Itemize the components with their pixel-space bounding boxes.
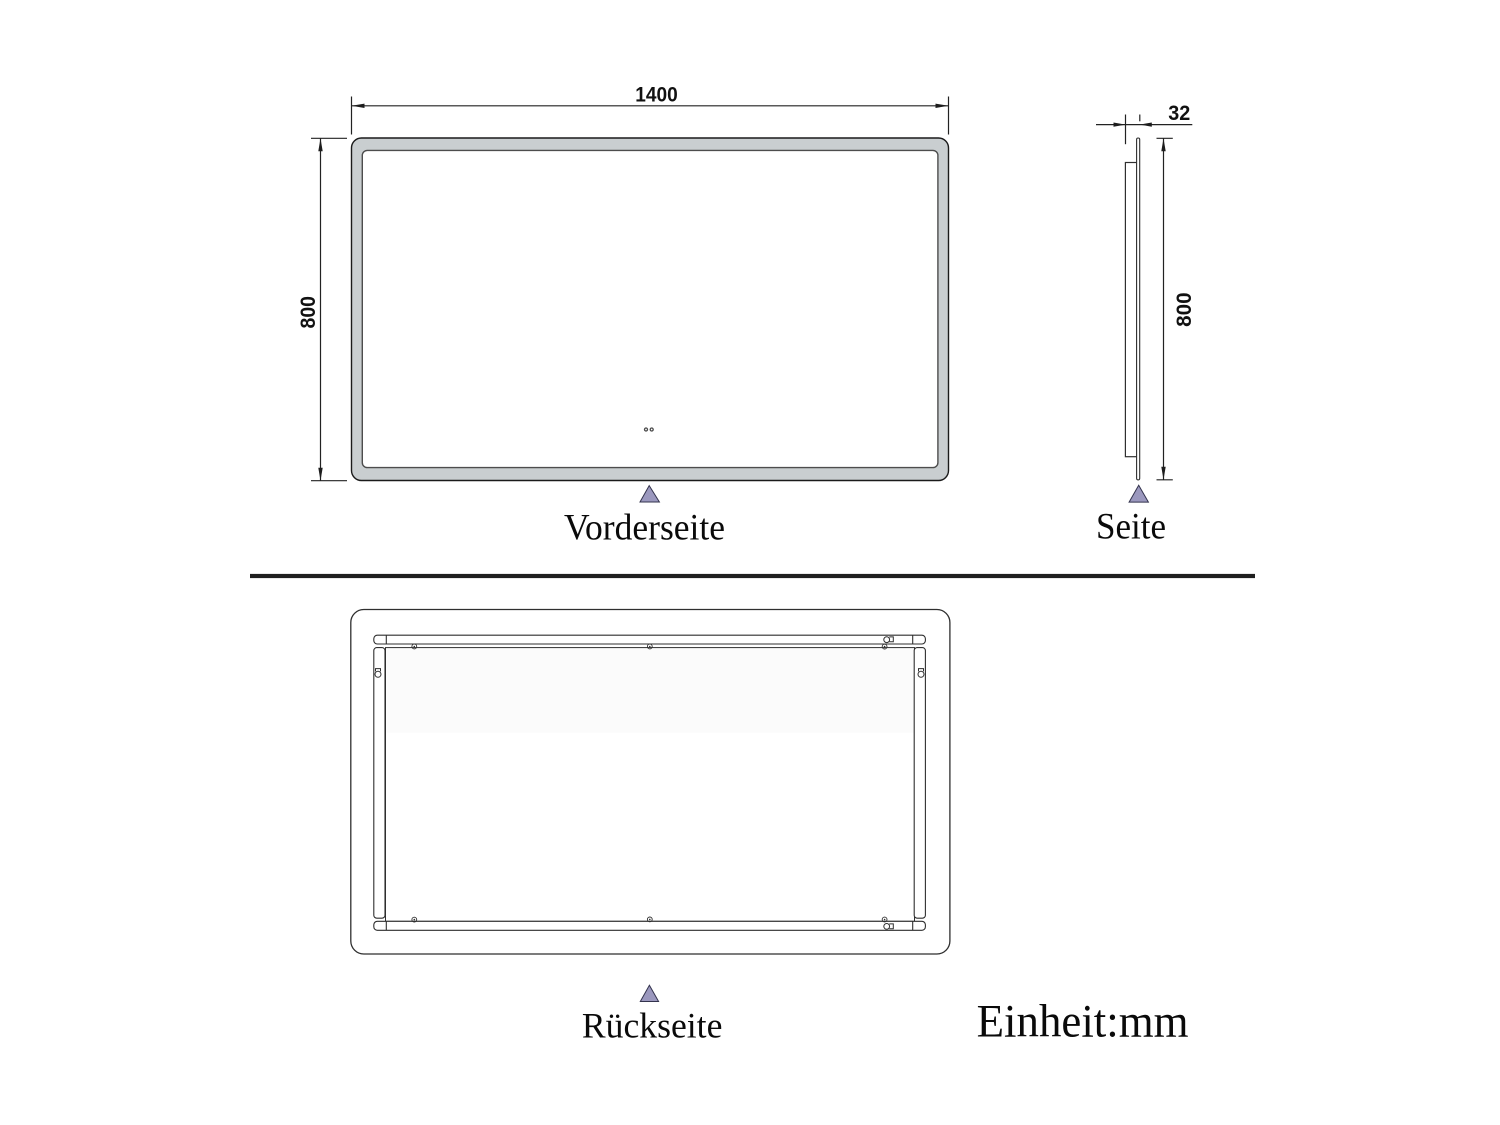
svg-text:800: 800 [296,296,320,329]
svg-text:800: 800 [1172,292,1196,327]
svg-text:1400: 1400 [635,83,678,107]
svg-text:Vorderseite: Vorderseite [564,508,725,549]
svg-text:32: 32 [1168,101,1190,125]
svg-text:Einheit:mm: Einheit:mm [977,997,1189,1048]
svg-text:Rückseite: Rückseite [582,1005,723,1045]
svg-text:Seite: Seite [1096,507,1166,548]
